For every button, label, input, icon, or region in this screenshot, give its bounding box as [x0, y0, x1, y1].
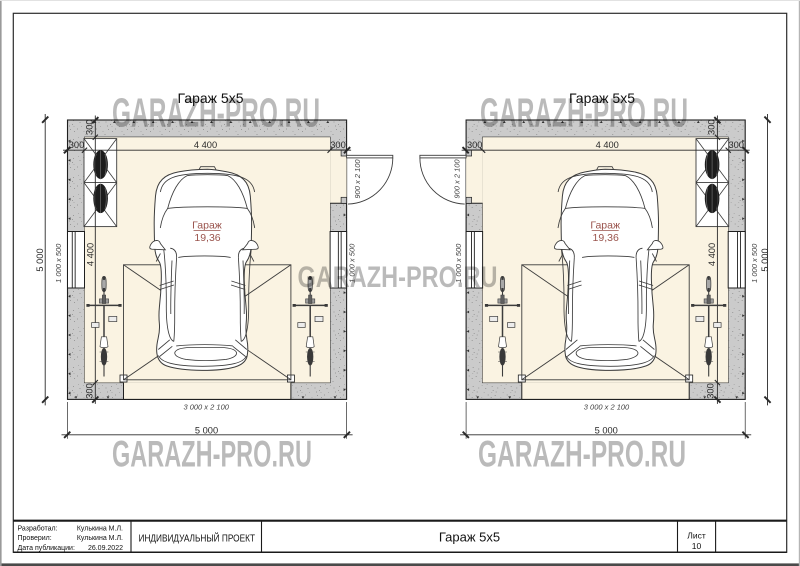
svg-text:300: 300: [85, 383, 95, 399]
svg-text:Лист: Лист: [687, 531, 706, 541]
svg-text:Кулькина М.Л.: Кулькина М.Л.: [77, 535, 123, 542]
svg-text:19,36: 19,36: [593, 232, 619, 244]
svg-text:Гараж 5х5: Гараж 5х5: [439, 530, 500, 545]
svg-text:26.09.2022: 26.09.2022: [88, 545, 123, 552]
svg-text:ИНДИВИДУАЛЬНЫЙ ПРОЕКТ: ИНДИВИДУАЛЬНЫЙ ПРОЕКТ: [139, 532, 256, 545]
svg-text:GARAZH-PRO.RU: GARAZH-PRO.RU: [298, 261, 498, 294]
svg-text:300: 300: [467, 140, 483, 150]
svg-text:300: 300: [705, 383, 715, 399]
svg-text:GARAZH-PRO.RU: GARAZH-PRO.RU: [478, 433, 686, 474]
svg-text:10: 10: [692, 541, 702, 551]
svg-text:Проверил:: Проверил:: [18, 535, 52, 542]
svg-text:1 000 x 500: 1 000 x 500: [750, 243, 759, 283]
svg-text:300: 300: [330, 140, 346, 150]
svg-text:300: 300: [69, 140, 85, 150]
svg-text:4 400: 4 400: [194, 140, 217, 150]
svg-text:GARAZH-PRO.RU: GARAZH-PRO.RU: [112, 433, 312, 474]
svg-text:Дата публикации:: Дата публикации:: [18, 544, 75, 552]
svg-text:300: 300: [706, 119, 716, 135]
svg-text:3 000 x 2 100: 3 000 x 2 100: [584, 403, 630, 412]
svg-text:GARAZH-PRO.RU: GARAZH-PRO.RU: [480, 90, 688, 136]
svg-text:4 400: 4 400: [596, 140, 619, 150]
svg-text:5 000: 5 000: [35, 248, 45, 271]
svg-text:5 000: 5 000: [760, 248, 770, 271]
svg-text:4 400: 4 400: [707, 243, 717, 266]
svg-text:300: 300: [85, 119, 95, 135]
svg-text:900 x 2 100: 900 x 2 100: [452, 159, 461, 199]
svg-text:Разработал:: Разработал:: [18, 525, 58, 533]
svg-text:19,36: 19,36: [194, 232, 220, 244]
svg-text:GARAZH-PRO.RU: GARAZH-PRO.RU: [112, 90, 320, 136]
svg-text:300: 300: [728, 140, 744, 150]
svg-text:4 400: 4 400: [85, 243, 95, 266]
svg-text:Гараж: Гараж: [590, 220, 620, 232]
svg-text:1 000 x 500: 1 000 x 500: [54, 243, 63, 283]
svg-text:Кулькина М.Л.: Кулькина М.Л.: [77, 526, 123, 533]
svg-text:Гараж: Гараж: [192, 220, 222, 232]
svg-text:3 000 x 2 100: 3 000 x 2 100: [183, 403, 229, 412]
svg-text:900 x 2 100: 900 x 2 100: [353, 159, 362, 199]
